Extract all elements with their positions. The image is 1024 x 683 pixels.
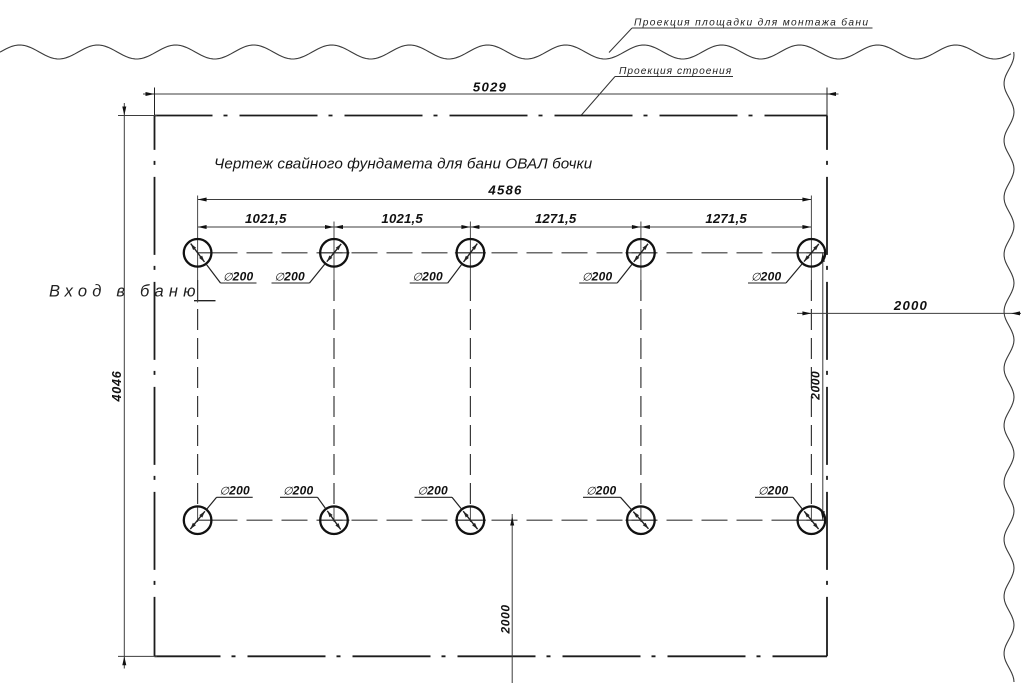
svg-text:1271,5: 1271,5 — [705, 211, 747, 226]
svg-text:∅200: ∅200 — [220, 483, 251, 497]
svg-text:2000: 2000 — [499, 604, 513, 634]
svg-text:Проекция строения: Проекция строения — [619, 66, 732, 77]
svg-text:1021,5: 1021,5 — [245, 211, 287, 226]
svg-text:∅200: ∅200 — [283, 483, 314, 497]
svg-text:∅200: ∅200 — [223, 269, 254, 283]
svg-text:∅200: ∅200 — [418, 483, 449, 497]
svg-text:∅200: ∅200 — [275, 269, 306, 283]
svg-text:2000: 2000 — [893, 298, 928, 313]
svg-text:2000: 2000 — [809, 371, 823, 401]
svg-text:5029: 5029 — [473, 79, 507, 94]
svg-text:1271,5: 1271,5 — [535, 211, 577, 226]
svg-text:Чертеж свайного фундамета для: Чертеж свайного фундамета для бани ОВАЛ … — [214, 155, 593, 172]
svg-text:∅200: ∅200 — [751, 269, 782, 283]
svg-text:1021,5: 1021,5 — [381, 211, 423, 226]
svg-text:∅200: ∅200 — [758, 483, 789, 497]
svg-text:4046: 4046 — [110, 370, 124, 402]
svg-text:∅200: ∅200 — [586, 483, 617, 497]
svg-text:∅200: ∅200 — [582, 269, 613, 283]
svg-text:Вход в баню: Вход в баню — [49, 283, 201, 301]
svg-text:∅200: ∅200 — [413, 269, 444, 283]
svg-text:4586: 4586 — [487, 182, 522, 197]
svg-text:Проекция площадки для монтажа: Проекция площадки для монтажа бани — [634, 17, 869, 29]
